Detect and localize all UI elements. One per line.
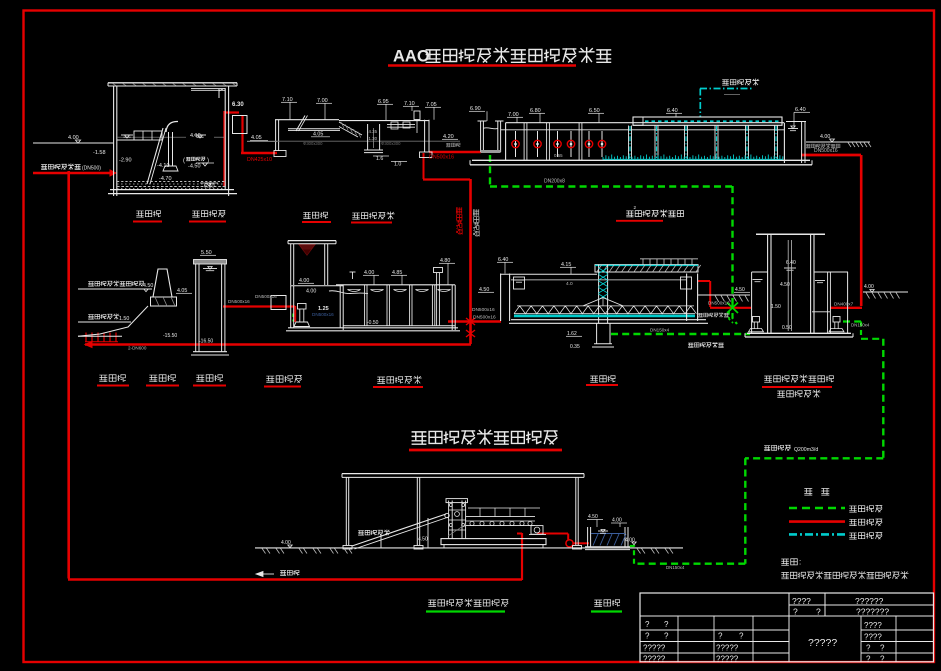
svg-text:DN500x16: DN500x16 (429, 155, 454, 161)
svg-text:-15.50: -15.50 (163, 333, 177, 339)
svg-text:-0.50: -0.50 (367, 320, 379, 326)
svg-text:4.50: 4.50 (780, 282, 790, 288)
svg-text:4.35: 4.35 (369, 129, 378, 134)
svg-text:?: ? (645, 632, 650, 641)
svg-text:4.10: 4.10 (190, 133, 201, 139)
svg-text:-4.70: -4.70 (159, 176, 172, 182)
svg-text:4.05: 4.05 (251, 135, 262, 141)
svg-text:?: ? (645, 620, 650, 629)
svg-text:Q200m3/d: Q200m3/d (794, 447, 818, 453)
svg-text:?????: ????? (716, 644, 739, 653)
svg-text:DN500x16: DN500x16 (708, 301, 730, 306)
svg-text:DN150x4: DN150x4 (666, 565, 685, 570)
svg-text:.: . (903, 573, 905, 580)
svg-text:4.00: 4.00 (281, 540, 291, 546)
svg-text:2-DN600: 2-DN600 (128, 346, 147, 351)
svg-text:): ) (207, 158, 209, 164)
svg-text:1.6: 1.6 (376, 156, 383, 162)
svg-text:6.40: 6.40 (786, 260, 796, 266)
svg-text:4.00: 4.00 (625, 538, 635, 544)
svg-text:DN500x16: DN500x16 (473, 315, 496, 321)
svg-text:(: ( (183, 158, 185, 164)
svg-text:?: ? (718, 632, 723, 641)
svg-text:-1.58: -1.58 (93, 150, 106, 156)
svg-text:4.50: 4.50 (143, 283, 153, 289)
svg-text:4.00: 4.00 (306, 289, 316, 295)
svg-text:?: ? (664, 620, 669, 629)
svg-text::: : (799, 558, 801, 567)
svg-text:1.0: 1.0 (394, 162, 401, 168)
svg-text:4.50: 4.50 (418, 537, 428, 543)
svg-text:???????: ??????? (856, 607, 889, 617)
svg-text:0.65: 0.65 (554, 153, 563, 158)
svg-text:-4.50: -4.50 (188, 164, 201, 170)
svg-text:4.50: 4.50 (588, 514, 598, 520)
svg-text:DN150x4: DN150x4 (851, 323, 870, 328)
svg-text:4.00: 4.00 (864, 284, 874, 290)
svg-text:DN500x16: DN500x16 (255, 294, 277, 299)
svg-text:DN400x7: DN400x7 (834, 302, 854, 307)
svg-text:DN200x8: DN200x8 (544, 179, 565, 185)
svg-text:?: ? (866, 644, 871, 653)
svg-text:Φ300x300: Φ300x300 (381, 141, 401, 146)
svg-text:?: ? (816, 607, 821, 617)
svg-text:1.50: 1.50 (119, 316, 129, 322)
svg-text:?????: ????? (716, 655, 739, 664)
svg-text:(DN500): (DN500) (82, 166, 101, 172)
svg-text:-2.90: -2.90 (119, 158, 132, 164)
svg-text:4.00: 4.00 (612, 518, 622, 524)
svg-text:1.50: 1.50 (771, 304, 781, 310)
svg-text:DN500x16: DN500x16 (228, 299, 250, 304)
svg-text:????: ???? (864, 621, 882, 630)
svg-text:0.35: 0.35 (570, 344, 580, 350)
svg-text:????: ???? (792, 596, 811, 606)
svg-text:?????: ????? (643, 644, 666, 653)
svg-text:-16.50: -16.50 (199, 339, 213, 345)
svg-text:6.30: 6.30 (232, 102, 244, 108)
svg-text:1.30: 1.30 (369, 136, 378, 141)
svg-text:AAO: AAO (393, 48, 430, 66)
svg-text:-4.10: -4.10 (157, 163, 170, 169)
svg-text:?: ? (880, 644, 885, 653)
svg-text:????: ???? (864, 633, 882, 642)
svg-text:DN500x16: DN500x16 (472, 307, 495, 313)
svg-text:4.00: 4.00 (820, 134, 830, 140)
svg-text:DN500x16: DN500x16 (312, 312, 334, 317)
svg-text:??????: ?????? (855, 596, 884, 606)
svg-text:?: ? (866, 655, 871, 664)
svg-text:?: ? (664, 632, 669, 641)
svg-text:?????: ????? (643, 655, 666, 664)
svg-text:DN150x4: DN150x4 (650, 328, 670, 333)
svg-text:?: ? (793, 607, 798, 617)
svg-text:4.00: 4.00 (68, 135, 79, 141)
svg-text:?????: ????? (808, 637, 837, 649)
svg-text:DN425x10: DN425x10 (247, 157, 272, 163)
svg-text:-6.20: -6.20 (202, 184, 215, 190)
svg-text:?: ? (739, 632, 744, 641)
svg-text:?: ? (880, 655, 885, 664)
svg-text:4.0: 4.0 (566, 281, 573, 287)
svg-text:DN500x16: DN500x16 (814, 148, 838, 154)
svg-text:0.50: 0.50 (782, 325, 792, 331)
svg-text:Φ300x300: Φ300x300 (303, 141, 323, 146)
